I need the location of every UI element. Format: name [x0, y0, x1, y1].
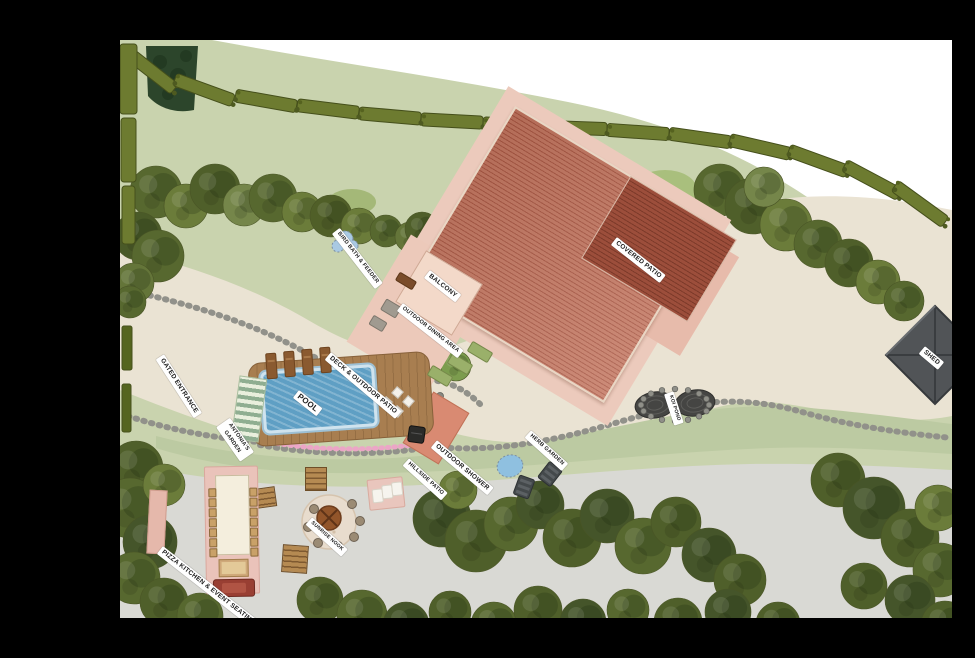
event-chair — [209, 538, 217, 547]
event-chair — [209, 518, 217, 527]
letterbox-left — [0, 0, 120, 658]
event-chair — [209, 508, 217, 517]
pool-lounger — [283, 351, 296, 378]
pool-lounger — [301, 349, 314, 376]
event-table — [215, 475, 250, 556]
event-chair — [250, 538, 258, 547]
event-chair — [209, 548, 217, 557]
pool-lounger — [265, 353, 278, 380]
tree — [841, 563, 887, 609]
letterbox-bottom — [0, 618, 975, 658]
tree — [884, 281, 924, 321]
event-chair — [250, 528, 258, 537]
event-chair — [250, 548, 258, 557]
event-chair — [209, 528, 217, 537]
hillside-patio-steps — [146, 490, 167, 555]
site-plan-stage: GATED ENTRANCE BIRD BATH & FEEDER BALCON… — [0, 0, 975, 658]
event-chair — [250, 508, 258, 517]
event-chair — [208, 498, 216, 507]
stairs — [281, 544, 309, 574]
kitchen-counter — [219, 559, 249, 578]
event-chair — [249, 498, 257, 507]
letterbox-right — [952, 0, 975, 658]
grill — [407, 425, 426, 444]
event-chair — [249, 488, 257, 497]
tree — [744, 167, 784, 207]
lounge-rug — [366, 476, 405, 511]
pizza-event-pavement — [204, 466, 260, 595]
event-chair — [250, 518, 258, 527]
map-canvas[interactable]: GATED ENTRANCE BIRD BATH & FEEDER BALCON… — [120, 40, 952, 618]
stairs — [305, 467, 327, 491]
letterbox-top — [0, 0, 975, 40]
event-chair — [208, 488, 216, 497]
